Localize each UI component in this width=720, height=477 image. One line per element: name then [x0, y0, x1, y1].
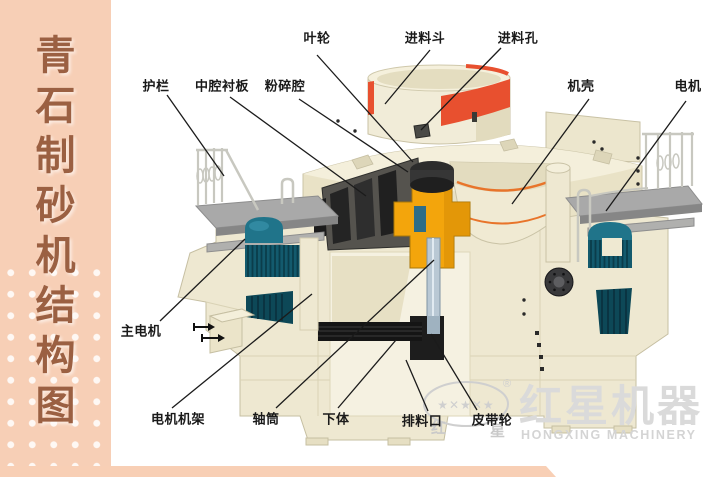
sidebar-title-char-5: 结: [36, 286, 76, 326]
logo-char-hong: 红: [431, 421, 446, 436]
sidebar-title-char-1: 石: [36, 86, 76, 126]
bottom-accent-strip: [0, 466, 560, 477]
sidebar-title-char-2: 制: [36, 136, 76, 176]
registered-mark: ®: [503, 378, 511, 390]
sidebar-title-char-0: 青: [36, 36, 76, 76]
logo-char-xing: 星: [490, 424, 505, 439]
sidebar-title-char-6: 构: [36, 336, 76, 376]
sidebar-title-banner: 青石制砂机结构图: [0, 0, 111, 477]
brand-name-cn: 红星机器: [519, 386, 703, 429]
logo-stars: ★✕★✕★: [437, 398, 494, 412]
sidebar-title-char-7: 图: [36, 386, 76, 426]
sidebar-title-char-3: 砂: [36, 186, 76, 226]
brand-name-en: HONGXING MACHINERY: [521, 429, 697, 442]
sidebar-title: 青石制砂机结构图: [0, 36, 111, 426]
sidebar-title-char-4: 机: [36, 236, 76, 276]
